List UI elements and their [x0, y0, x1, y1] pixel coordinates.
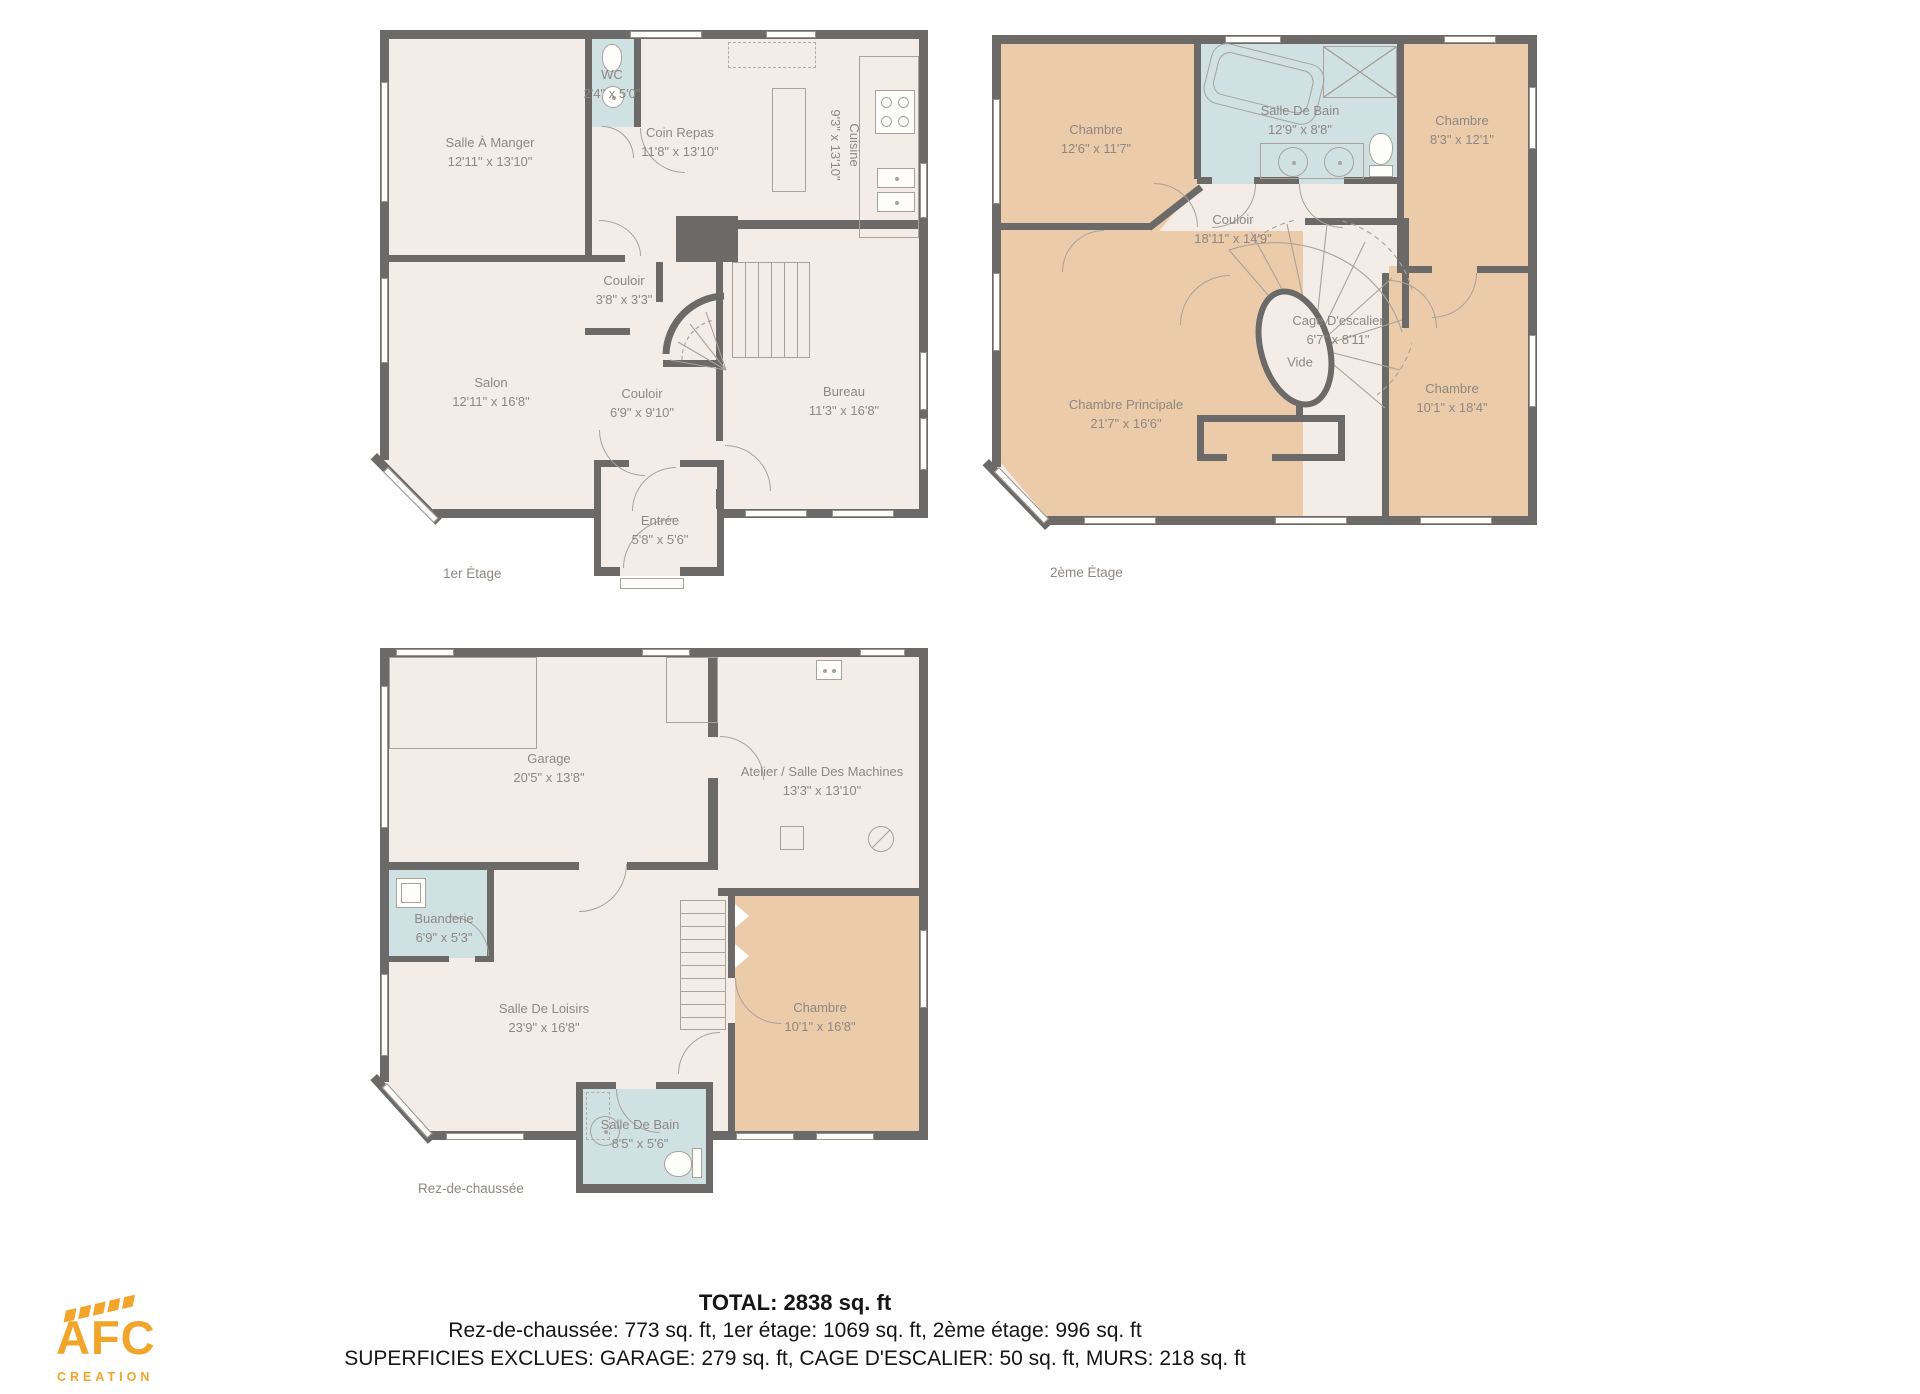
room-dims: 6'9" x 5'3": [414, 928, 473, 947]
room-label-salle-de-bain: Salle De Bain 12'9" x 8'8": [1261, 101, 1340, 139]
room-name: Chambre: [1430, 111, 1494, 130]
wall: [680, 567, 724, 576]
room-dims: 6'9" x 9'10": [610, 403, 674, 422]
staircase-treads: [732, 262, 810, 358]
window: [920, 163, 927, 218]
wall: [576, 1082, 583, 1193]
wall: [576, 1184, 713, 1193]
room-dims: 10'1" x 18'4": [1416, 398, 1487, 417]
room-dims: 12'9" x 8'8": [1261, 120, 1340, 139]
room-label-salle-de-bain: Salle De Bain 8'5" x 5'6": [601, 1115, 680, 1153]
washer-icon: [396, 878, 426, 908]
window: [993, 273, 1000, 351]
wall: [1001, 223, 1151, 230]
room-dims: 8'3" x 12'1": [1430, 130, 1494, 149]
window: [920, 418, 927, 470]
window: [1275, 517, 1347, 524]
wall: [728, 1023, 735, 1131]
window: [1420, 517, 1492, 524]
room-name: Cuisine: [845, 109, 864, 180]
closet-bifold-icon: [735, 904, 749, 928]
window: [1225, 36, 1281, 43]
room-dims: 10'1" x 16'8": [784, 1017, 855, 1036]
window: [1084, 517, 1156, 524]
room-label-buanderie: Buanderie 6'9" x 5'3": [414, 909, 473, 947]
wall: [718, 888, 928, 896]
room-dims: 3'8" x 3'3": [596, 290, 653, 309]
room-name: Buanderie: [414, 909, 473, 928]
window: [381, 686, 388, 828]
room-dims: 12'11" x 16'8": [452, 392, 530, 411]
room-label-bureau: Bureau 11'3" x 16'8": [809, 382, 879, 420]
room-dims: 12'11" x 13'10": [446, 152, 535, 171]
wall: [1194, 44, 1201, 179]
window: [920, 930, 927, 1008]
window: [630, 31, 702, 38]
furnace-icon: [780, 826, 804, 850]
kitchen-island-counter: [772, 88, 806, 192]
wall: [389, 956, 449, 962]
room-label-cuisine: Cuisine 9'3" x 13'10": [826, 109, 864, 180]
room-name: Salle De Loisirs: [499, 999, 589, 1018]
garage-storage: [666, 657, 718, 723]
room-name: Couloir: [1194, 210, 1272, 229]
window: [766, 31, 816, 38]
room-label-coin-repas: Coin Repas 11'8" x 13'10": [641, 123, 719, 161]
room-name: Cage D'escalier: [1292, 311, 1383, 330]
room-label-couloir: Couloir 6'9" x 9'10": [610, 384, 674, 422]
window: [446, 1133, 524, 1140]
room-name: Garage: [513, 749, 584, 768]
room-name: Coin Repas: [641, 123, 719, 142]
room-label-salle-de-loisirs: Salle De Loisirs 23'9" x 16'8": [499, 999, 589, 1037]
wall: [380, 255, 592, 262]
wall: [627, 862, 718, 870]
room-label-garage: Garage 20'5" x 13'8": [513, 749, 584, 787]
sink-icon: [1324, 147, 1354, 177]
room-name: Chambre: [1061, 120, 1131, 139]
room-dims: 11'8" x 13'10": [641, 142, 719, 161]
logo-subtitle: CREATION: [57, 1370, 153, 1384]
room-name: Vide: [1287, 353, 1313, 372]
wall: [656, 1082, 713, 1089]
kitchen-sink-icon: [877, 168, 915, 188]
window: [993, 99, 1000, 204]
window: [1444, 36, 1496, 43]
kitchen-sink-icon: [877, 192, 915, 212]
excluded-areas-text: SUPERFICIES EXCLUES: GARAGE: 279 sq. ft,…: [290, 1345, 1300, 1373]
room-name: Salle De Bain: [1261, 101, 1340, 120]
room-label-chambre-principale: Chambre Principale 21'7" x 16'6": [1069, 395, 1183, 433]
sink-icon: [1278, 147, 1308, 177]
room-name: Chambre Principale: [1069, 395, 1183, 414]
wall: [708, 778, 718, 870]
closet-bifold-icon: [735, 944, 749, 968]
window: [381, 278, 388, 363]
window: [642, 649, 690, 656]
plan-caption-ground: Rez-de-chaussée: [418, 1181, 524, 1196]
wall: [594, 567, 620, 576]
wall: [475, 956, 494, 962]
floor-area: [380, 30, 928, 518]
staircase-treads: [680, 900, 726, 1030]
room-name: WC: [584, 65, 641, 84]
floorplan-level-1: Salle À Manger 12'11" x 13'10" WC 2'4" x…: [380, 30, 928, 630]
water-heater-icon: [868, 826, 894, 852]
wall: [585, 255, 625, 262]
room-name: Couloir: [596, 271, 653, 290]
wall: [1197, 177, 1212, 184]
room-dims: 21'7" x 16'6": [1069, 414, 1183, 433]
wall: [706, 1082, 713, 1193]
room-name: Salon: [452, 373, 530, 392]
room-dims: 20'5" x 13'8": [513, 768, 584, 787]
room-label-vide: Vide: [1287, 353, 1313, 372]
wall: [594, 460, 601, 576]
wall: [1272, 454, 1345, 461]
room-name: Chambre: [784, 998, 855, 1017]
window: [816, 1133, 874, 1140]
room-label-entree: Entrée 5'8" x 5'6": [632, 511, 689, 549]
room-label-cage-escalier: Cage D'escalier 6'7" x 8'11": [1292, 311, 1383, 349]
floorplan-level-2: Chambre 12'6" x 11'7" Salle De Bain 12'9…: [992, 35, 1537, 595]
window: [736, 1133, 794, 1140]
room-dims: 8'5" x 5'6": [601, 1134, 680, 1153]
room-label-salle-a-manger: Salle À Manger 12'11" x 13'10": [446, 133, 535, 171]
room-label-couloir-small: Couloir 3'8" x 3'3": [596, 271, 653, 309]
window: [832, 510, 894, 517]
garage-storage: [389, 657, 537, 749]
toilet-icon: [664, 1151, 692, 1177]
room-name: Bureau: [809, 382, 879, 401]
window: [920, 352, 927, 410]
room-label-chambre-tr: Chambre 8'3" x 12'1": [1430, 111, 1494, 149]
window: [381, 974, 388, 1056]
window: [1529, 335, 1536, 407]
window: [396, 649, 454, 656]
entry-step: [620, 578, 684, 589]
room-label-atelier: Atelier / Salle Des Machines 13'3" x 13'…: [741, 762, 904, 800]
total-area-text: TOTAL: 2838 sq. ft: [290, 1288, 1300, 1317]
room-dims: 13'3" x 13'10": [741, 781, 904, 800]
wall: [1477, 266, 1529, 273]
room-label-wc: WC 2'4" x 5'0": [584, 65, 641, 103]
staircase-winder: [660, 292, 732, 372]
window: [860, 649, 905, 656]
room-label-chambre: Chambre 10'1" x 16'8": [784, 998, 855, 1036]
room-label-chambre-br: Chambre 10'1" x 18'4": [1416, 379, 1487, 417]
electrical-panel-icon: [816, 660, 842, 680]
floor-areas-text: Rez-de-chaussée: 773 sq. ft, 1er étage: …: [290, 1317, 1300, 1345]
room-label-chambre-tl: Chambre 12'6" x 11'7": [1061, 120, 1131, 158]
room-dims: 5'8" x 5'6": [632, 530, 689, 549]
room-dims: 2'4" x 5'0": [584, 84, 641, 103]
wall: [717, 460, 724, 576]
toilet-tank: [692, 1148, 702, 1178]
room-name: Salle De Bain: [601, 1115, 680, 1134]
plan-caption-level-1: 1er Étage: [443, 566, 502, 581]
room-dims: 6'7" x 8'11": [1292, 330, 1383, 349]
room-dims: 23'9" x 16'8": [499, 1018, 589, 1037]
clapper-stripe: [122, 1295, 135, 1309]
floorplan-sheet: { "plans": [ { "caption": "1er Étage", "…: [0, 0, 1920, 1394]
room-name: Entrée: [632, 511, 689, 530]
window: [745, 510, 807, 517]
wall: [433, 509, 594, 518]
area-summary: TOTAL: 2838 sq. ft Rez-de-chaussée: 773 …: [290, 1288, 1300, 1373]
room-dims: 18'11" x 14'9": [1194, 229, 1272, 248]
room-dims: 9'3" x 13'10": [826, 109, 845, 180]
room-name: Chambre: [1416, 379, 1487, 398]
room-dims: 12'6" x 11'7": [1061, 139, 1131, 158]
room-label-salon: Salon 12'11" x 16'8": [452, 373, 530, 411]
room-dims: 11'3" x 16'8": [809, 401, 879, 420]
room-name: Salle À Manger: [446, 133, 535, 152]
upper-cabinet: [728, 42, 816, 68]
stove-icon: [875, 90, 915, 134]
room-label-couloir: Couloir 18'11" x 14'9": [1194, 210, 1272, 248]
wall: [389, 862, 579, 870]
wall: [728, 896, 735, 978]
room-name: Atelier / Salle Des Machines: [741, 762, 904, 781]
room-name: Couloir: [610, 384, 674, 403]
wall: [487, 870, 494, 958]
chimney-block: [676, 216, 738, 262]
window: [1529, 87, 1536, 149]
shower-icon: [1323, 46, 1397, 98]
window: [381, 82, 388, 202]
wall: [1197, 415, 1204, 461]
plan-caption-level-2: 2ème Étage: [1050, 565, 1123, 580]
floorplan-ground: Garage 20'5" x 13'8" Atelier / Salle Des…: [380, 648, 928, 1213]
wall: [585, 328, 630, 335]
chambre-tr-floor: [1404, 44, 1529, 266]
toilet-tank: [1369, 165, 1393, 177]
logo-name: AFC: [56, 1314, 156, 1362]
toilet-icon: [1369, 133, 1393, 165]
